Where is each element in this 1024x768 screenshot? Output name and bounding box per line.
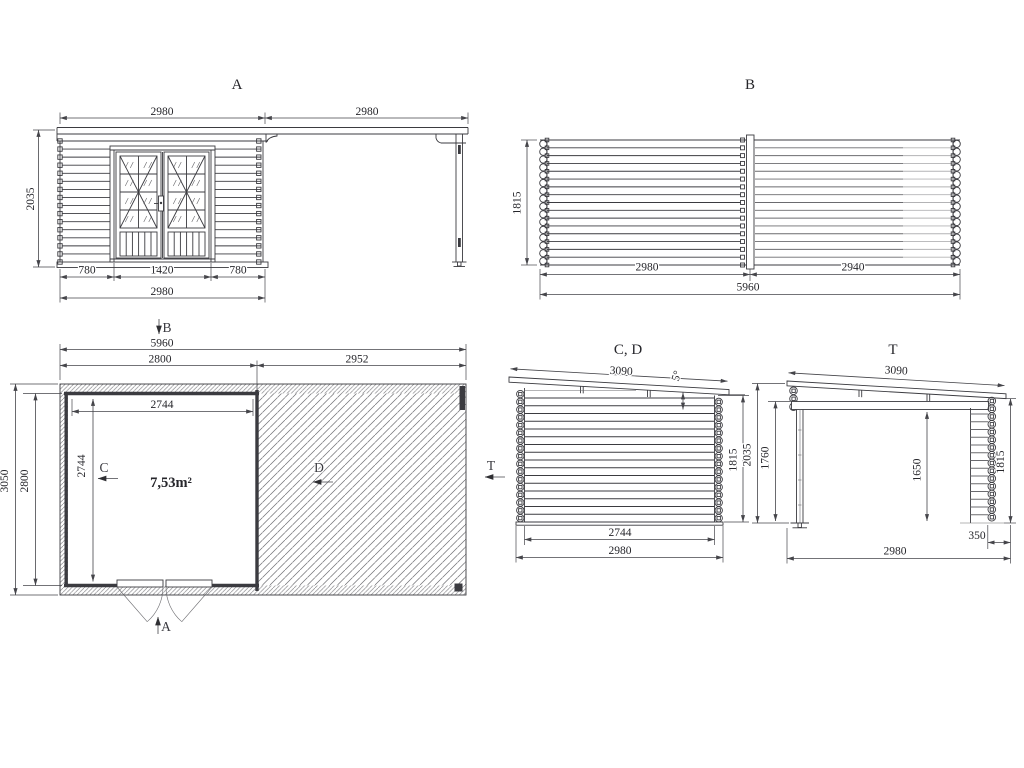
dim-front-height: 2035 [25, 187, 37, 210]
view-front-elevation: A 2980 2980 2035 780 1420 780 2980 [25, 77, 468, 303]
section-arrow-t-label: T [487, 458, 496, 473]
view-side-cd-title: C, D [614, 342, 643, 358]
view-side-t-elevation: T 3090 2035 1760 1650 1815 350 2980 [742, 342, 1017, 564]
dim-cd-bottom-total: 2980 [609, 545, 632, 557]
view-side-t-title: T [888, 342, 897, 358]
dim-plan-outer-depth: 3050 [0, 469, 11, 492]
side-cd-geometry [509, 377, 745, 525]
dim-plan-top-left: 2800 [149, 354, 172, 366]
dim-rear-bottom-total: 5960 [737, 282, 760, 294]
dim-cd-roof-length: 3090 [609, 365, 633, 378]
section-arrow-d-label: D [314, 460, 324, 475]
front-canopy-and-post [266, 134, 467, 267]
dim-t-height-outer: 2035 [742, 443, 754, 466]
view-side-cd-elevation: C, D 3090 5° 1815 2744 2980 [509, 342, 749, 563]
plan-geometry [60, 384, 466, 595]
cabin-technical-drawing: A 2980 2980 2035 780 1420 780 2980 B 181… [0, 0, 1024, 768]
dim-plan-top-right: 2952 [346, 354, 369, 366]
dim-t-roof-length: 3090 [884, 364, 908, 377]
dim-front-bottom-right: 780 [229, 265, 247, 277]
dim-t-wall-stub: 350 [968, 530, 986, 542]
dim-t-wall-height: 1815 [995, 450, 1007, 473]
dim-front-top-left: 2980 [151, 106, 174, 118]
dim-cd-wall-height: 1815 [728, 448, 740, 471]
dim-front-top-right: 2980 [356, 106, 379, 118]
plan-floor-area-label: 7,53m² [150, 475, 192, 491]
dim-t-clear-height: 1650 [912, 458, 924, 481]
blueprint-page: A 2980 2980 2035 780 1420 780 2980 B 181… [0, 0, 1024, 768]
side-t-geometry [787, 381, 1006, 528]
view-rear-title: B [745, 77, 755, 93]
dim-plan-room-depth: 2800 [19, 469, 31, 492]
front-double-door [110, 146, 215, 262]
dim-rear-height: 1815 [512, 191, 524, 214]
section-arrow-b-label: B [162, 320, 171, 335]
dim-plan-inner-width: 2744 [151, 399, 174, 411]
section-arrow-a-label: A [161, 619, 171, 634]
section-arrow-c-label: C [99, 460, 108, 475]
dim-t-post-height: 1760 [760, 446, 772, 469]
dim-t-bottom-total: 2980 [884, 546, 907, 558]
dim-plan-top-total: 5960 [151, 338, 174, 350]
rear-wall-geometry [540, 135, 961, 269]
dim-plan-inner-depth: 2744 [76, 454, 88, 477]
view-floor-plan: B A C D T 7,53m² 5960 2800 2952 2744 305… [0, 319, 505, 634]
dim-front-bottom-center: 1420 [151, 265, 174, 277]
view-front-title: A [232, 77, 243, 93]
dim-front-bottom-total: 2980 [151, 286, 174, 298]
dim-cd-roof-angle: 5° [670, 369, 685, 383]
dim-rear-bottom-left: 2980 [636, 262, 659, 274]
dim-cd-inner-width: 2744 [609, 527, 632, 539]
dim-rear-bottom-right: 2940 [842, 262, 865, 274]
dim-front-bottom-left: 780 [78, 265, 96, 277]
view-rear-elevation: B 1815 2980 2940 5960 [512, 77, 961, 300]
